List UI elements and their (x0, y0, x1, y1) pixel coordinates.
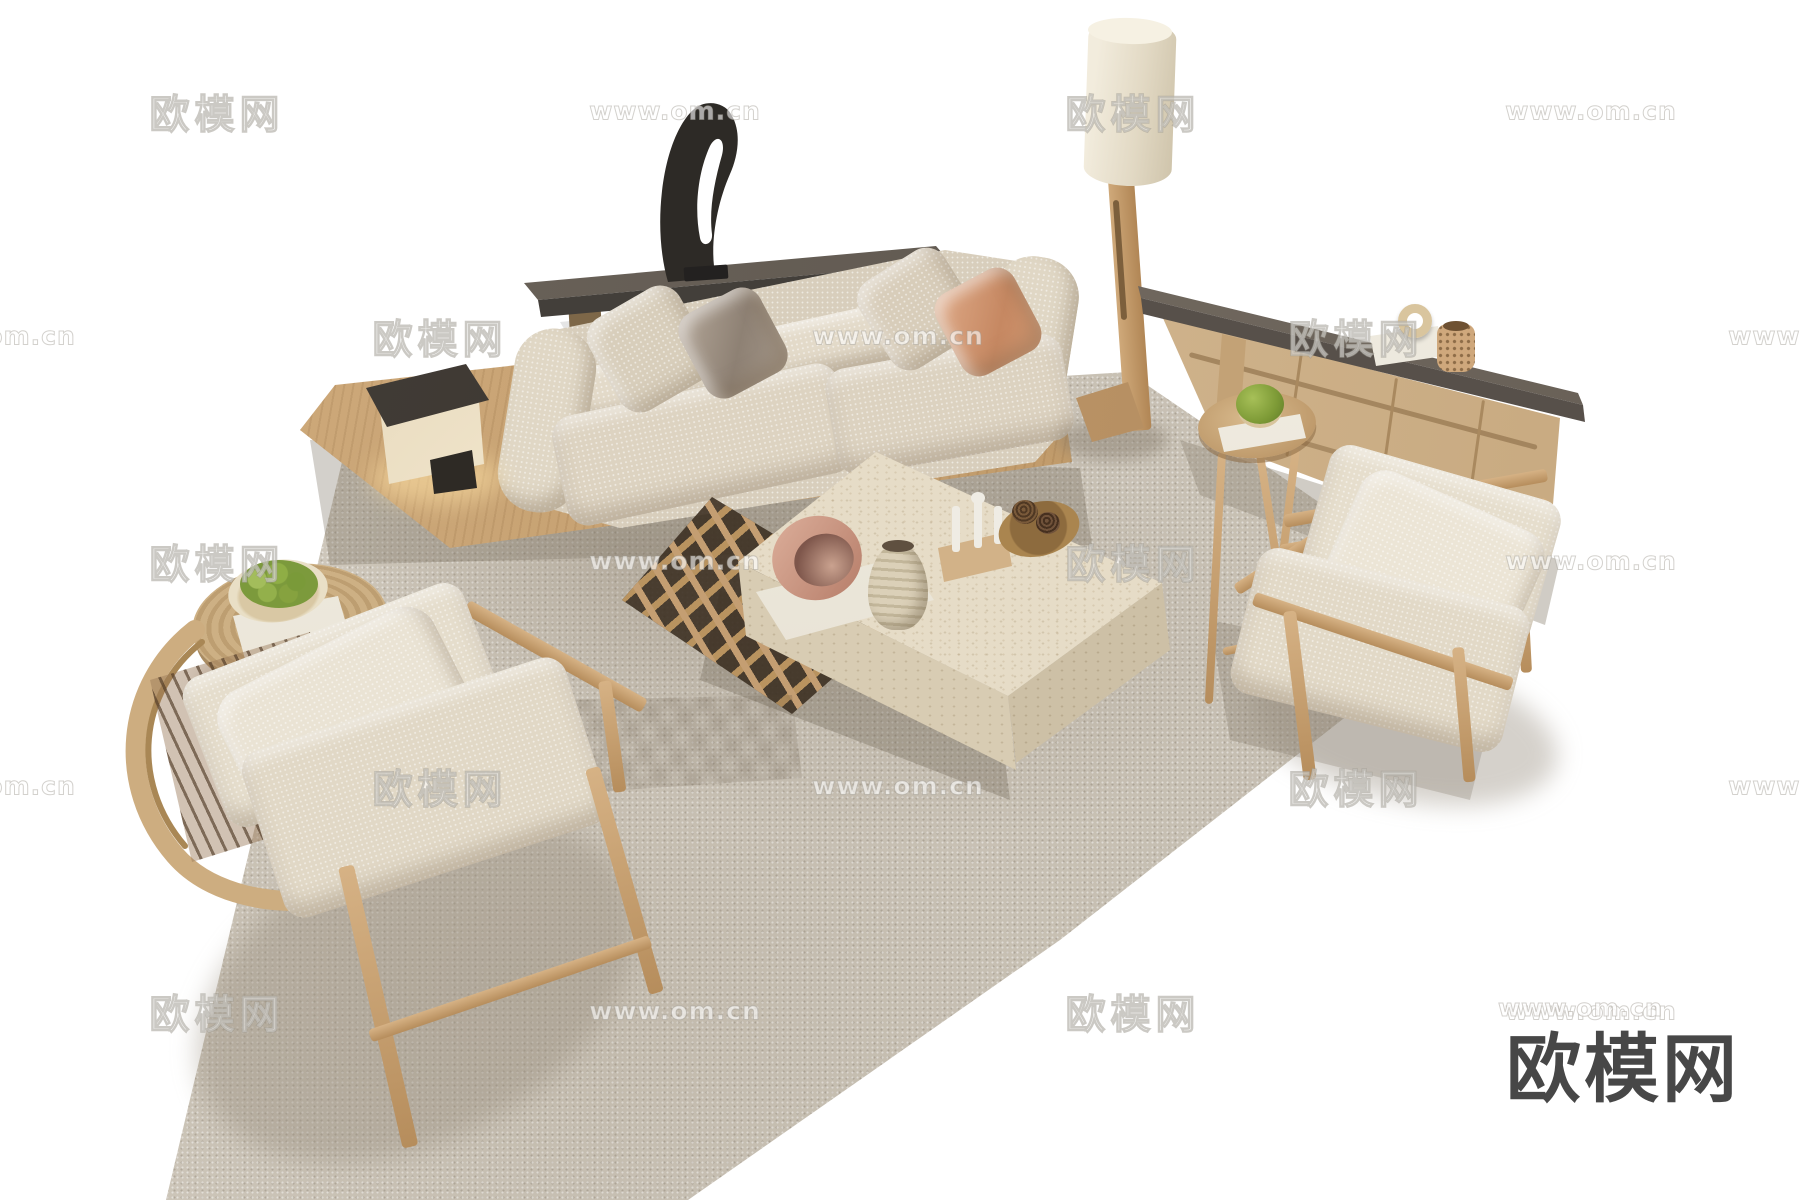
perforated-vase (1437, 324, 1475, 372)
candle-holder-ball (971, 492, 985, 504)
watermark-corner-logo: 欧模网 (1506, 1008, 1740, 1117)
watermark-url-tile: www.om.cn (1728, 772, 1800, 801)
watermark-logo-tile: 欧模网 (1066, 982, 1201, 1040)
candle-holder-pin-1 (952, 510, 960, 552)
watermark-url-tile: www.om.cn (1505, 97, 1677, 126)
watermark-url-tile: www.om.cn (0, 322, 76, 351)
ribbed-vase (868, 544, 928, 630)
watermark-logo-tile: 欧模网 (373, 307, 508, 365)
perforated-vase-mouth (1443, 321, 1469, 331)
ribbed-vase-mouth (882, 540, 914, 552)
pinecone-1 (1012, 500, 1038, 524)
abstract-sculpture (636, 86, 766, 286)
watermark-url-tile: www.om.cn (1728, 322, 1800, 351)
ring-ornament (1398, 304, 1432, 338)
watermark-logo-tile: 欧模网 (150, 82, 285, 140)
candle-holder-pin-2 (974, 500, 982, 548)
render-canvas: 欧模网www.om.cn欧模网www.om.cnwww.om.cn欧模网www.… (0, 0, 1800, 1200)
pinecone-2 (1036, 512, 1060, 534)
moss-bowl (1236, 384, 1284, 424)
watermark-url-tile: www.om.cn (0, 772, 76, 801)
